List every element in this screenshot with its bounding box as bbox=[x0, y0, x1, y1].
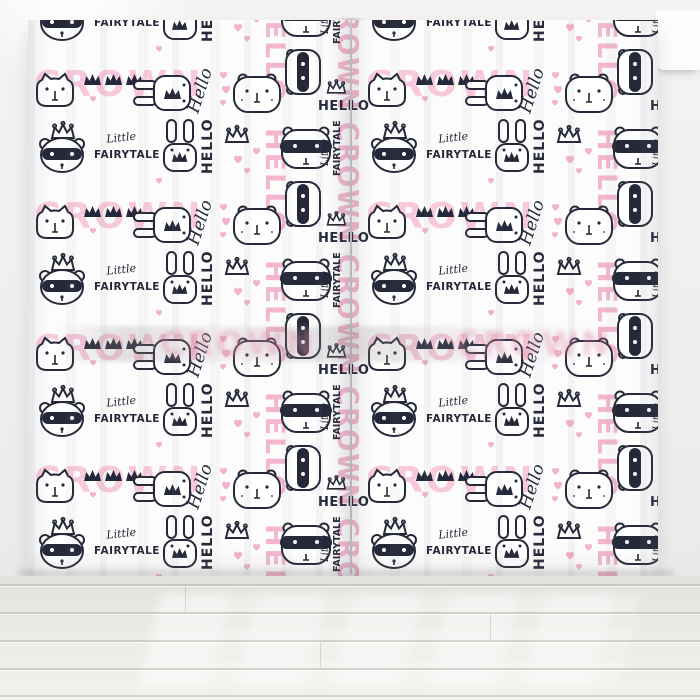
curtain-panel-left bbox=[28, 20, 350, 576]
wood-floor bbox=[0, 576, 700, 700]
floor-plank-joint bbox=[490, 614, 491, 640]
floor-plank-line bbox=[0, 612, 700, 614]
floor-plank-joint bbox=[185, 586, 186, 612]
floor-plank-joint bbox=[320, 642, 321, 668]
watermark-word: CROWN bbox=[160, 324, 317, 363]
watermark-band: CROWN CROWN bbox=[55, 326, 615, 362]
white-cornice bbox=[656, 10, 700, 70]
curtain-pattern-right bbox=[352, 20, 658, 576]
floor-plank-line bbox=[0, 640, 700, 642]
product-photo: CROWN HELLO CROWN Little FAI bbox=[0, 0, 700, 700]
floor-plank-line bbox=[0, 584, 700, 586]
curtain-panel-right bbox=[352, 20, 658, 576]
floor-plank-line bbox=[0, 695, 700, 697]
curtain-pattern-left bbox=[28, 20, 350, 576]
floor-plank-line bbox=[0, 668, 700, 670]
watermark-word: CROWN bbox=[455, 324, 612, 363]
